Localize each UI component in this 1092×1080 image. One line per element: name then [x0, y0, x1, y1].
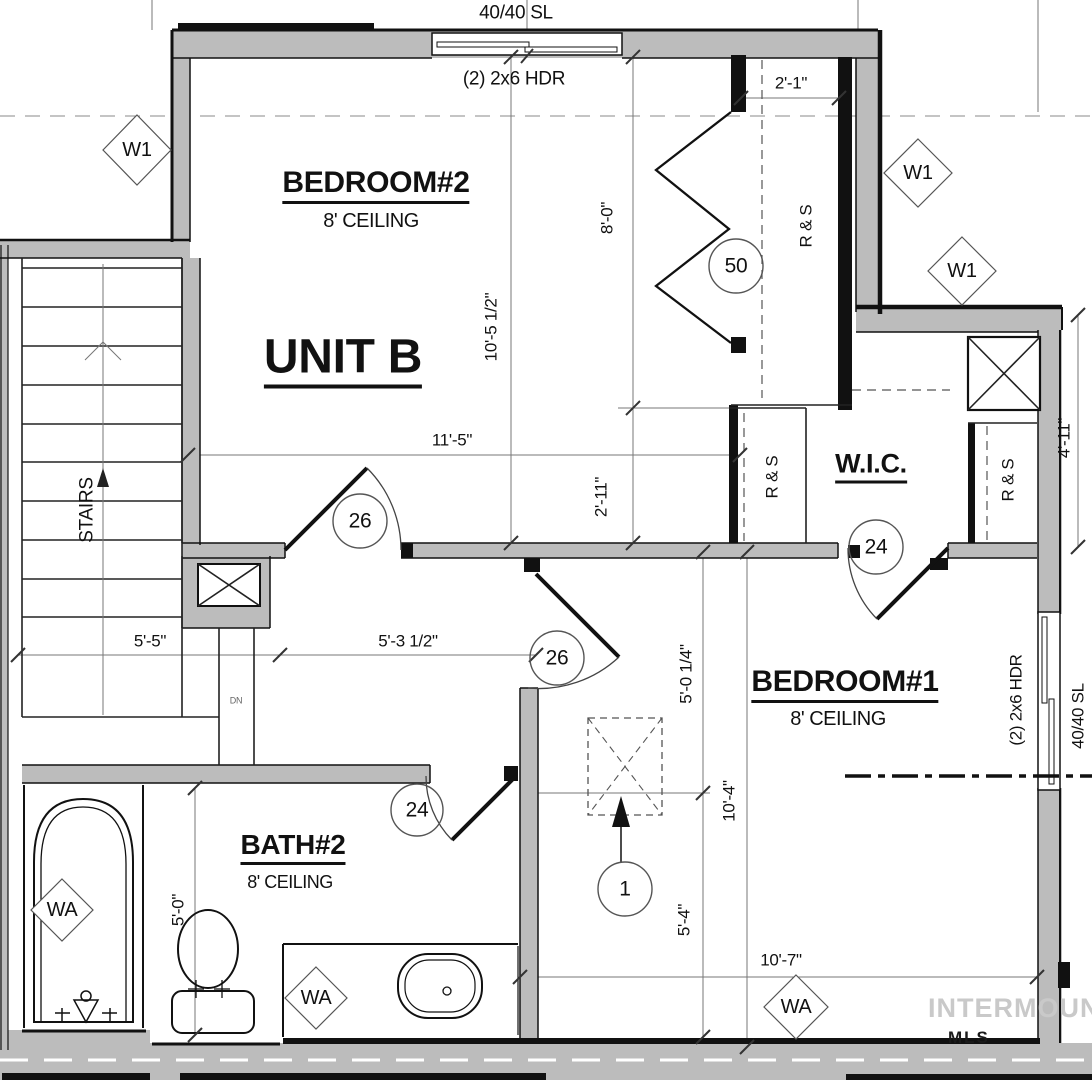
door-size-tag-wic: 24: [865, 537, 888, 558]
stairs-label: STAIRS: [78, 477, 97, 542]
top-window-size-label: 40/40 SL: [479, 4, 553, 23]
dim-wic-depth: 4'-11": [1056, 418, 1073, 458]
dim-bath-width: 5'-0": [170, 894, 187, 926]
door-bath2: [426, 776, 516, 840]
door-hall-bedroom1: [528, 574, 619, 689]
right-window-header-label: (2) 2x6 HDR: [1008, 654, 1025, 745]
stairs-treads: [22, 258, 254, 765]
top-window-header-label: (2) 2x6 HDR: [463, 70, 565, 89]
window-right-slider: [1038, 612, 1060, 790]
wa-wall-tag: WA: [47, 900, 78, 920]
dim-closet-to-wall: 2'-11": [593, 477, 610, 517]
wa-wall-tag: WA: [781, 997, 812, 1017]
window-top-slider: [432, 33, 622, 63]
attic-arrow: [612, 796, 630, 827]
watermark-logo: MLS: [948, 1028, 990, 1048]
dim-closet-width: 2'-1": [775, 75, 807, 92]
dim-bedroom1-lower: 5'-4": [676, 904, 693, 936]
chase-box-wic: [968, 337, 1040, 410]
bedroom2-name: BEDROOM#2: [282, 168, 469, 204]
dim-closet-height: 8'-0": [599, 202, 616, 234]
w1-window-tag: W1: [122, 140, 151, 160]
stairs-down-label: DN: [230, 697, 242, 706]
closet-rod-shelf-label: R & S: [764, 456, 781, 499]
dim-bedroom1-height: 10'-4": [721, 780, 738, 822]
door-size-tag-bifold: 50: [725, 256, 748, 277]
bath2-name: BATH#2: [240, 831, 345, 865]
attic-access-hatch: [588, 718, 662, 862]
attic-access-tag: 1: [619, 879, 630, 900]
watermark-text: INTERMOUNTAIN: [928, 993, 1092, 1024]
closet-rod-shelf-label: R & S: [798, 205, 815, 248]
bedroom1-name: BEDROOM#1: [751, 667, 938, 703]
dim-bedroom2-width: 11'-5": [432, 432, 472, 449]
dim-bedroom1-upper: 5'-0 1/4": [678, 644, 695, 704]
wall-tag-diamonds: [31, 879, 828, 1039]
right-window-size-label: 40/40 SL: [1070, 683, 1087, 749]
unit-label: UNIT B: [264, 334, 422, 389]
sink: [398, 954, 482, 1018]
w1-window-tag: W1: [947, 261, 976, 281]
wa-wall-tag: WA: [301, 988, 332, 1008]
door-size-tag-bath: 24: [406, 800, 429, 821]
door-size-tag-bedroom2: 26: [349, 511, 372, 532]
wic-name: W.I.C.: [835, 451, 907, 484]
stairs-up-arrow: [97, 468, 109, 487]
door-size-tag-hall: 26: [546, 648, 569, 669]
chase-box-stairs: [198, 564, 260, 606]
dim-bedroom1-width: 10'-7": [760, 952, 802, 969]
dim-bedroom2-depth: 10'-5 1/2": [483, 293, 500, 362]
toilet: [172, 910, 254, 1033]
closet-rod-shelf-label: R & S: [1000, 459, 1017, 502]
floorplan-page: 40/40 SL (2) 2x6 HDR W1 W1 W1 BEDROOM#2 …: [0, 0, 1092, 1080]
dim-hall-right: 5'-3 1/2": [378, 633, 438, 650]
dim-hall-left: 5'-5": [134, 633, 166, 650]
bedroom2-ceiling: 8' CEILING: [323, 211, 419, 231]
bedroom1-ceiling: 8' CEILING: [790, 709, 886, 729]
w1-window-tag: W1: [903, 163, 932, 183]
door-bifold-closet: [656, 112, 731, 343]
bath2-ceiling: 8' CEILING: [247, 873, 332, 891]
